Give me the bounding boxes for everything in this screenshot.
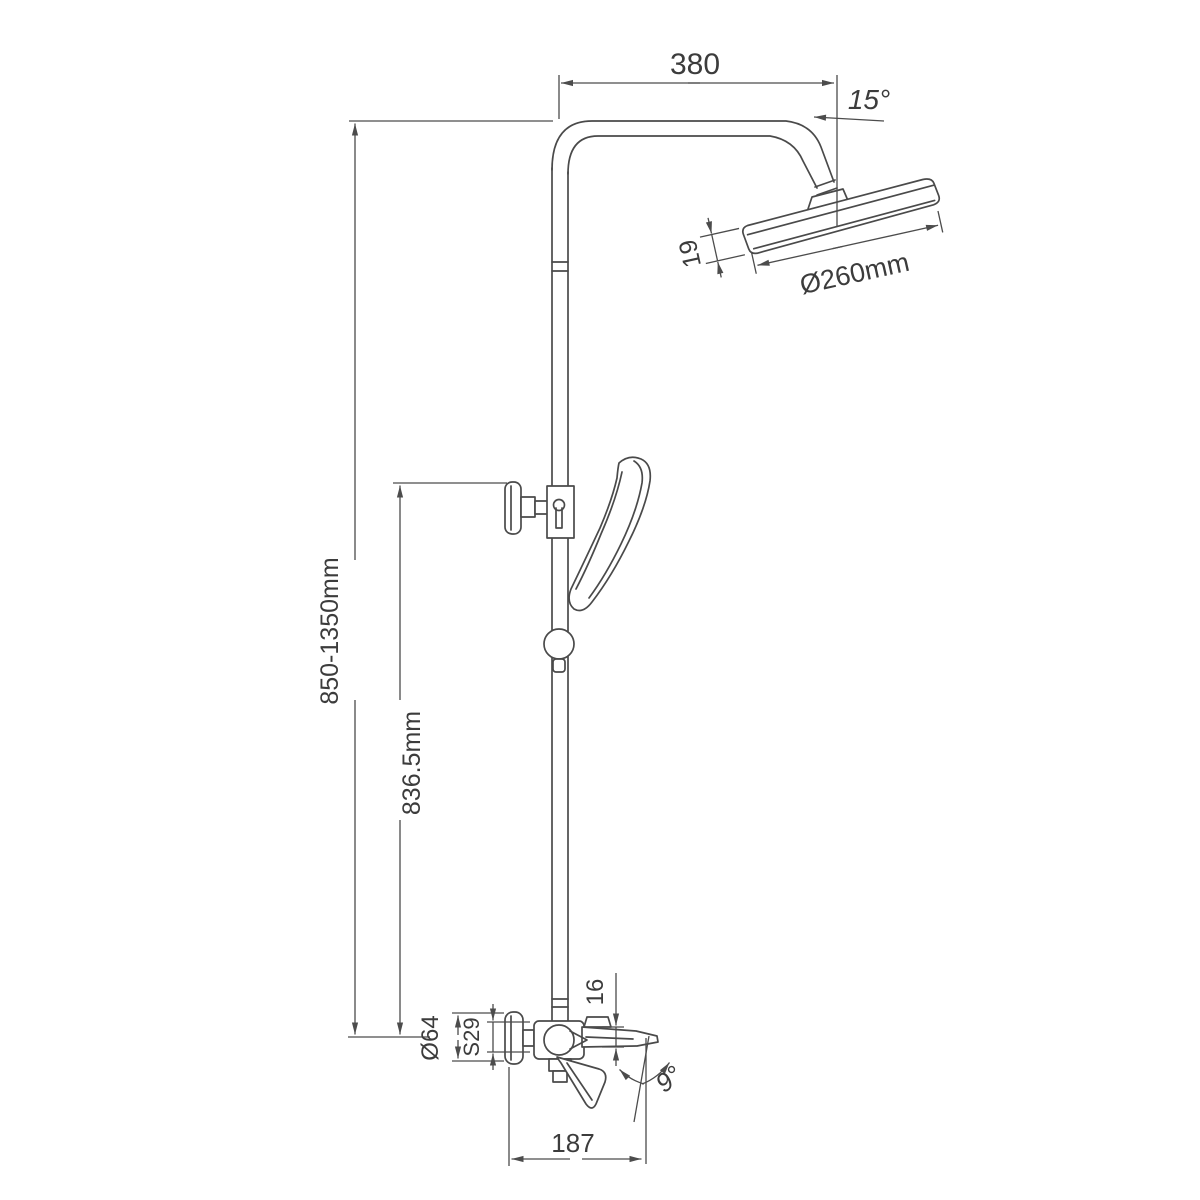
slider-block	[547, 486, 574, 538]
riser-pipe	[552, 168, 568, 1021]
dimension-spout-angle: 9°	[620, 1036, 688, 1164]
bath-mixer	[505, 1012, 658, 1108]
rain-shower-head: Ø260mm 19	[670, 168, 955, 325]
technical-drawing: Ø260mm 19	[0, 0, 1200, 1200]
dimension-slide-bar-height: 836.5mm	[393, 483, 507, 1035]
nut-width-label: S29	[459, 1017, 484, 1056]
spout-diverter-tab	[584, 1017, 611, 1027]
shower-system-drawing: Ø260mm 19	[0, 0, 1200, 1200]
dimension-top-arm-width: 380	[559, 48, 837, 226]
spout-angle-label: 9°	[649, 1059, 687, 1098]
spout-reach-label: 187	[551, 1128, 594, 1158]
top-arm-width-label: 380	[670, 48, 720, 81]
head-diameter-label: Ø260mm	[797, 247, 912, 300]
dimension-total-height: 850-1350mm	[316, 121, 553, 1037]
slide-bar-height-label: 836.5mm	[398, 711, 426, 815]
dimension-head-thickness: 19	[670, 212, 749, 286]
slider-wall-bracket	[505, 482, 574, 538]
head-thickness-label: 19	[674, 237, 707, 270]
shower-arm	[552, 121, 837, 195]
dimension-head-angle: 15°	[814, 84, 890, 121]
mixer-escutcheon	[505, 1012, 523, 1064]
total-height-label: 850-1350mm	[316, 557, 344, 704]
spout-drop-label: 16	[582, 979, 609, 1006]
mixer-cartridge	[544, 1025, 574, 1055]
hand-shower	[569, 457, 650, 610]
escutcheon-diameter-label: Ø64	[417, 1015, 444, 1060]
slider-lock-knob	[544, 629, 574, 672]
head-angle-label: 15°	[848, 84, 890, 115]
